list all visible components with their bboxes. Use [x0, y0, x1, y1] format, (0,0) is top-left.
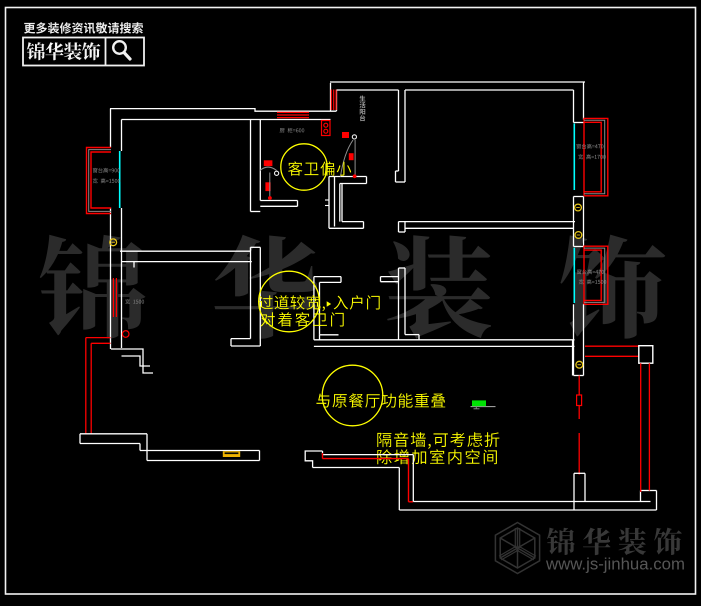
svg-text:www.js-jinhua.com: www.js-jinhua.com — [545, 555, 685, 574]
